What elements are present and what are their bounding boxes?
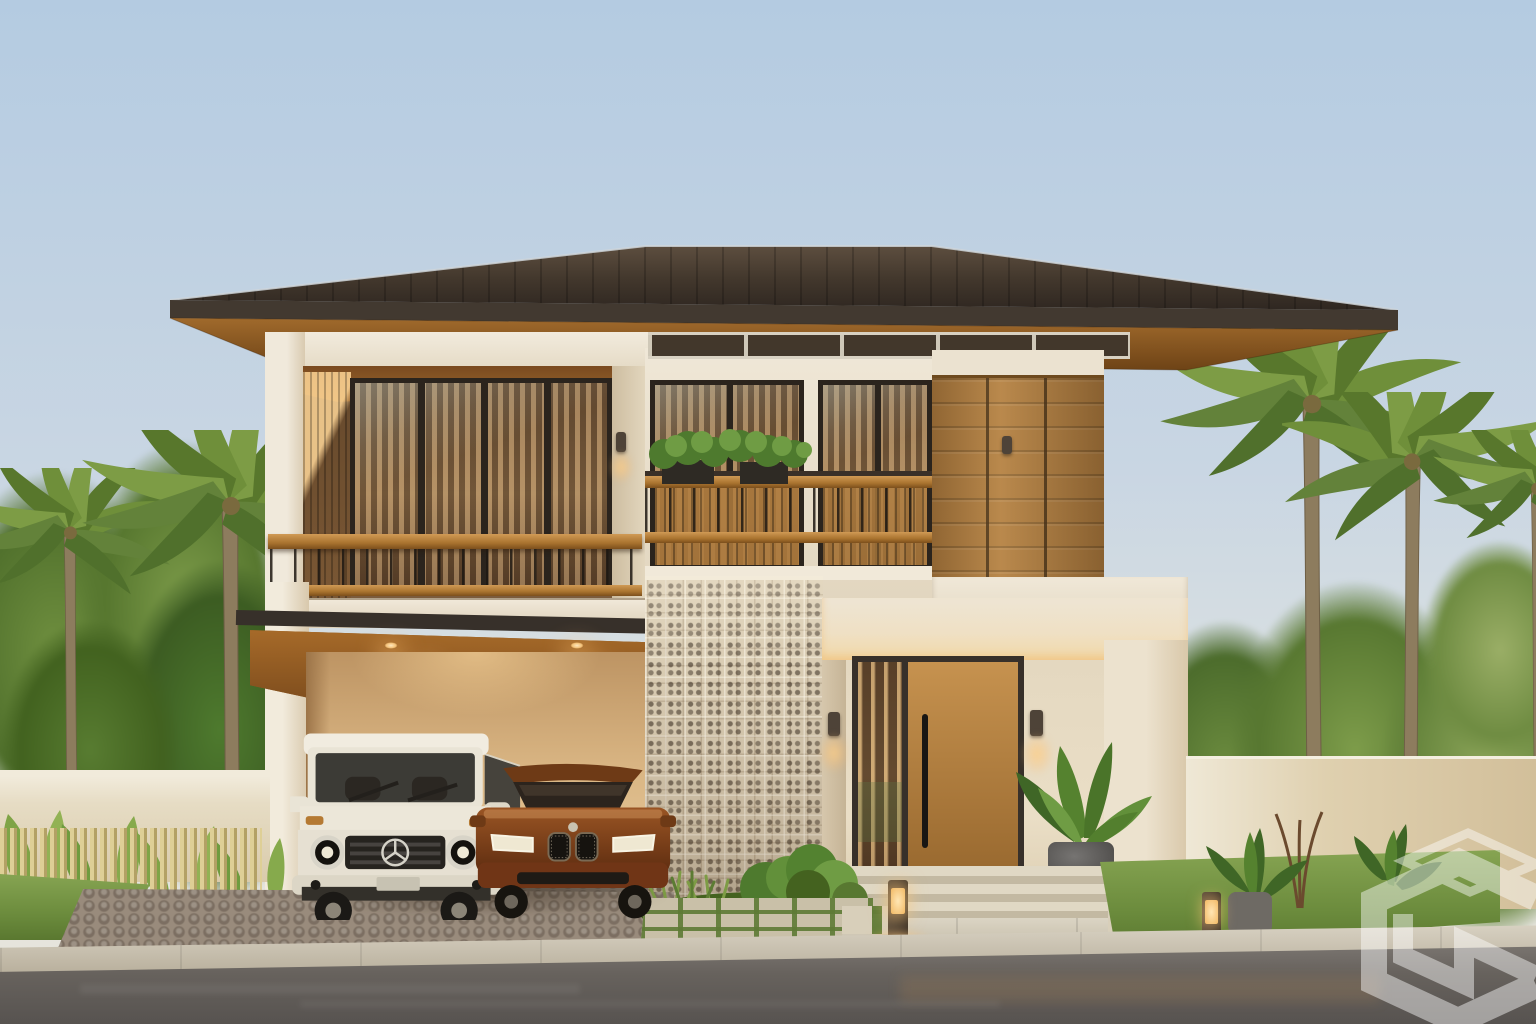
center-balusters bbox=[645, 488, 935, 534]
sedan-headlight-right bbox=[613, 835, 654, 852]
palm-tree-far-right bbox=[1424, 430, 1536, 760]
sedan-headlight-left bbox=[492, 835, 533, 852]
wall-sconce-upper-right bbox=[1002, 436, 1012, 454]
carport-downlight-3 bbox=[570, 642, 584, 649]
balcony-balusters bbox=[270, 549, 642, 587]
center-rail-bottom bbox=[645, 532, 935, 543]
suv-windshield bbox=[316, 753, 475, 802]
balcony-top-rail bbox=[268, 534, 642, 549]
door-handle[interactable] bbox=[922, 714, 928, 848]
sedan-badge bbox=[568, 822, 578, 832]
sedan-roof bbox=[503, 764, 642, 784]
railing-planter-plants bbox=[644, 424, 824, 490]
scene-render bbox=[0, 0, 1536, 1024]
wood-siding-volume bbox=[932, 375, 1104, 580]
suv-hood bbox=[300, 806, 491, 832]
watermark-cube-logo-icon bbox=[1346, 824, 1536, 1024]
slatted-wood-door[interactable] bbox=[908, 662, 1018, 868]
balcony-bottom-rail bbox=[270, 585, 642, 596]
entry-sconce-left-glow bbox=[818, 732, 850, 774]
wall-sconce-upper-left bbox=[616, 432, 626, 452]
carport-downlight-1 bbox=[384, 642, 398, 649]
sconce-glow bbox=[608, 450, 634, 484]
right-wall-band bbox=[932, 350, 1104, 378]
suv-license-plate bbox=[377, 877, 420, 891]
sedan-brown bbox=[470, 752, 676, 920]
